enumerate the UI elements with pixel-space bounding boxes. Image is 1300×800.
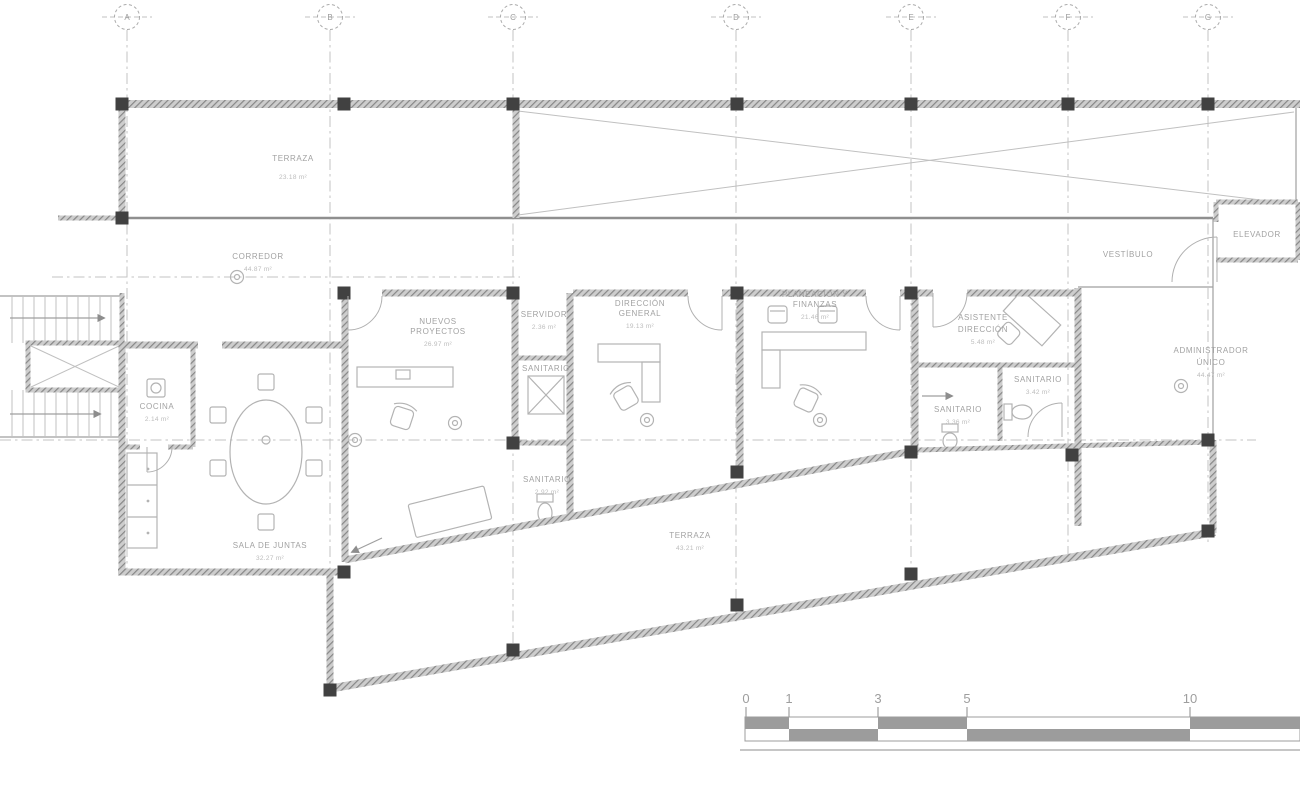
svg-text:TERRAZA: TERRAZA [669, 531, 711, 540]
room-label-servidor: SERVIDOR 2.36 m² [521, 310, 567, 331]
room-label-terraza-sur: TERRAZA 43.21 m² [669, 531, 711, 552]
svg-text:ASISTENTE: ASISTENTE [958, 313, 1008, 322]
svg-text:GENERAL: GENERAL [619, 309, 661, 318]
grid-label: E [908, 13, 913, 22]
svg-text:TERRAZA: TERRAZA [272, 154, 314, 163]
meeting-table [210, 374, 322, 530]
floor-plan-canvas: A B C D E F G [0, 0, 1300, 800]
svg-text:44.87 m²: 44.87 m² [244, 266, 273, 273]
grid-bubble-g: G [1183, 5, 1233, 30]
scale-tick-label: 10 [1183, 691, 1197, 706]
svg-text:3.42 m²: 3.42 m² [1026, 389, 1051, 396]
svg-text:26.97 m²: 26.97 m² [424, 341, 453, 348]
grid-bubble-d: D [711, 5, 761, 30]
stair-treads-upper [12, 296, 111, 343]
room-label-corredor: CORREDOR 44.87 m² [232, 252, 283, 273]
door-arc [866, 296, 900, 330]
room-label-sala-de-juntas: SALA DE JUNTAS 32.27 m² [233, 541, 308, 562]
svg-text:SERVIDOR: SERVIDOR [521, 310, 567, 319]
grid-label: C [510, 13, 516, 22]
door-arc [147, 447, 172, 472]
grid-bubble-c: C [488, 5, 538, 30]
room-label-elevador: ELEVADOR [1233, 230, 1281, 239]
svg-text:2.92 m²: 2.92 m² [535, 489, 560, 496]
room-label-sanitario-este: SANITARIO 3.42 m² [1014, 375, 1062, 396]
grid-label: D [733, 13, 739, 22]
svg-text:VESTÍBULO: VESTÍBULO [1103, 250, 1153, 259]
svg-text:FINANZAS: FINANZAS [793, 300, 837, 309]
door-arc [1028, 403, 1062, 437]
cabinet [127, 453, 157, 548]
entry-arrow [352, 538, 382, 552]
grid-label: A [124, 13, 130, 22]
svg-text:44.47 m²: 44.47 m² [1197, 372, 1226, 379]
svg-text:ELEVADOR: ELEVADOR [1233, 230, 1281, 239]
svg-text:CORREDOR: CORREDOR [232, 252, 283, 261]
structural-columns [116, 98, 1215, 697]
room-label-asistente-direccion: ASISTENTE DIRECCIÓN 5.48 m² [958, 313, 1008, 346]
svg-text:19.13 m²: 19.13 m² [626, 323, 655, 330]
grid-label: G [1205, 13, 1211, 22]
svg-text:DIRECCIÓN: DIRECCIÓN [615, 299, 665, 308]
svg-text:SALA DE JUNTAS: SALA DE JUNTAS [233, 541, 308, 550]
svg-text:COCINA: COCINA [140, 402, 175, 411]
toilet [1004, 404, 1032, 420]
scale-tick-label: 1 [785, 691, 792, 706]
svg-text:ÚNICO: ÚNICO [1197, 358, 1226, 367]
svg-text:2.36 m²: 2.36 m² [532, 324, 557, 331]
svg-text:SANITARIO: SANITARIO [522, 364, 570, 373]
grid-bubble-f: F [1043, 5, 1093, 30]
svg-text:DIRECCIÓN: DIRECCIÓN [958, 325, 1008, 334]
scale-tick-label: 3 [874, 691, 881, 706]
svg-text:32.27 m²: 32.27 m² [256, 555, 285, 562]
svg-text:21.46 m²: 21.46 m² [801, 314, 830, 321]
svg-text:5.48 m²: 5.48 m² [971, 339, 996, 346]
walls [58, 100, 1300, 690]
scale-tick-label: 0 [742, 691, 749, 706]
scale-tick-label: 5 [963, 691, 970, 706]
room-labels: TERRAZA 23.18 m² CORREDOR 44.87 m² VESTÍ… [140, 154, 1281, 562]
desk [762, 306, 866, 414]
svg-text:2.14 m²: 2.14 m² [145, 416, 170, 423]
door-arc [348, 296, 382, 330]
room-label-terraza-norte: TERRAZA 23.18 m² [272, 154, 314, 181]
room-label-sanitario-servidor: SANITARIO [522, 364, 570, 373]
svg-text:PROYECTOS: PROYECTOS [410, 327, 466, 336]
grid-bubble-a: A [102, 5, 152, 30]
room-label-sanitario-oeste: SANITARIO 3.36 m² [934, 405, 982, 426]
svg-text:43.21 m²: 43.21 m² [676, 545, 705, 552]
staircase [0, 296, 122, 437]
desk [357, 367, 492, 538]
door-swings [147, 237, 1217, 552]
desk [598, 344, 660, 413]
door-arc [688, 296, 722, 330]
room-label-cocina: COCINA 2.14 m² [140, 402, 175, 423]
room-label-administrador-unico: ADMINISTRADOR ÚNICO 44.47 m² [1174, 346, 1249, 379]
grid-label: F [1066, 13, 1071, 22]
floor-plan-page: A B C D E F G [0, 0, 1300, 800]
toilet [942, 424, 958, 449]
svg-text:SANITARIO: SANITARIO [523, 475, 571, 484]
stove-icon [147, 379, 165, 397]
level-marker-icon [231, 271, 1188, 447]
room-label-nuevos-proyectos: NUEVOS PROYECTOS 26.97 m² [410, 317, 466, 348]
grid-bubble-e: E [886, 5, 936, 30]
room-label-planeacion-finanzas: PLANEACIÓN Y FINANZAS 21.46 m² [782, 290, 848, 321]
svg-text:PLANEACIÓN Y: PLANEACIÓN Y [782, 290, 848, 299]
svg-text:23.18 m²: 23.18 m² [279, 174, 308, 181]
server-rack [528, 376, 564, 414]
svg-text:SANITARIO: SANITARIO [1014, 375, 1062, 384]
svg-text:3.36 m²: 3.36 m² [946, 419, 971, 426]
svg-text:SANITARIO: SANITARIO [934, 405, 982, 414]
door-arc [1172, 237, 1217, 282]
svg-text:ADMINISTRADOR: ADMINISTRADOR [1174, 346, 1249, 355]
room-label-direccion-general: DIRECCIÓN GENERAL 19.13 m² [615, 299, 665, 330]
room-label-vestibulo: VESTÍBULO [1103, 250, 1153, 259]
grid-label: B [327, 13, 332, 22]
svg-text:NUEVOS: NUEVOS [419, 317, 456, 326]
room-label-sanitario-centro: SANITARIO 2.92 m² [523, 475, 571, 496]
grid-bubble-b: B [305, 5, 355, 30]
scale-bar: 0 1 3 5 10 [740, 691, 1300, 750]
